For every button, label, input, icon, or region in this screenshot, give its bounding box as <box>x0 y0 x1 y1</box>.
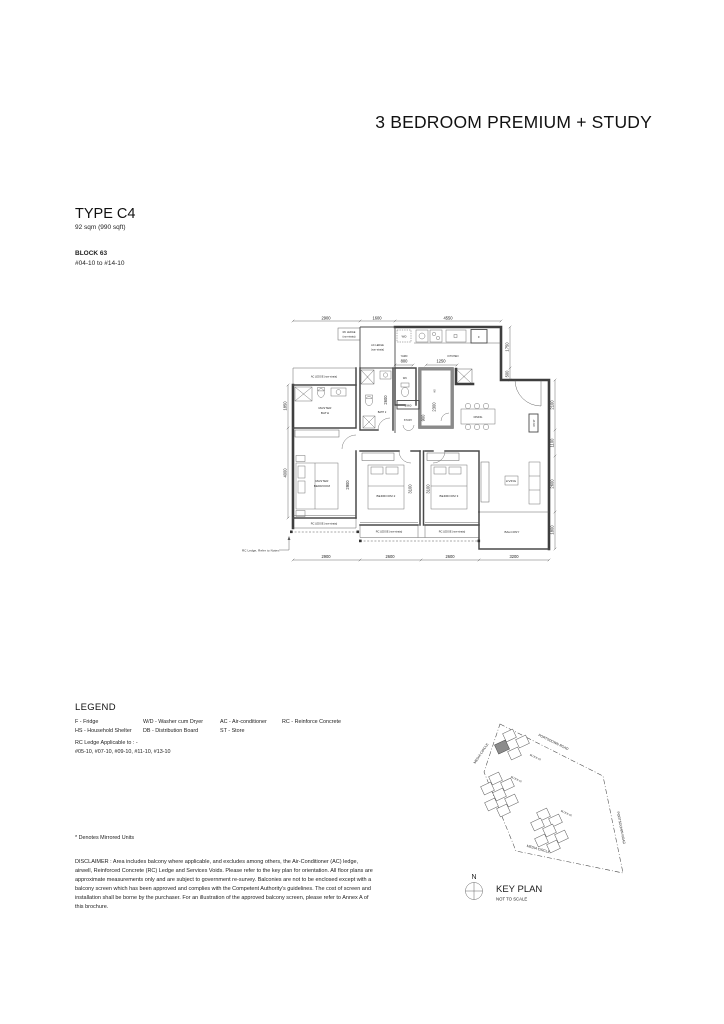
floor-plan: RC LEDGE (non-strata) RC LEDGE (non-stra… <box>240 313 583 571</box>
dim-right-1100: 1100 <box>550 438 555 448</box>
master-bedroom: MASTER BEDROOM 2900 <box>295 430 356 517</box>
master-bath-label2: BATH <box>321 411 329 415</box>
disclaimer-text: DISCLAIMER : Area includes balcony where… <box>75 858 375 911</box>
ac-ledge-strip-label: AC LEDGE (non-strata) <box>311 376 337 379</box>
highlighted-unit <box>494 740 509 754</box>
key-plan: BLOCK 63 BLOCK 61 BLOCK 65 PORTSDOWN ROA… <box>438 698 666 913</box>
walls-interior <box>293 368 549 526</box>
bath2-label: BATH 2 <box>378 411 387 414</box>
keyplan-block-63: BLOCK 63 <box>494 729 541 762</box>
block-info: BLOCK 63 #04-10 to #14-10 <box>75 249 125 269</box>
dim-left-1: 1850 <box>283 401 288 411</box>
bath-2: BATH 2 2600 <box>361 370 391 430</box>
wc-room: WC <box>401 377 409 397</box>
bedroom2-label: BEDROOM 2 <box>377 494 396 498</box>
dim-top-3: 4550 <box>443 315 453 320</box>
bedroom2-dim: 3100 <box>408 484 413 494</box>
rc-ledge-box-label: RC LEDGE <box>343 331 356 334</box>
page-title: 3 BEDROOM PREMIUM + STUDY <box>375 112 652 133</box>
bedroom3-dim: 3100 <box>426 484 431 494</box>
master-bedroom-label2: BEDROOM <box>314 484 331 488</box>
balcony-label: BALCONY <box>504 530 519 534</box>
bedroom3-label: BEDROOM 3 <box>440 494 459 498</box>
rc-ledge-box-label2: (non-strata) <box>343 336 356 339</box>
rc-note: RC Ledge, Refer to Notes. <box>242 536 290 553</box>
hs-label: HS <box>434 389 437 393</box>
keyplan-title: KEY PLAN <box>496 884 542 895</box>
compass: N <box>466 874 483 900</box>
kitchen: W/D F YARD 800 KITCHEN 1250 <box>394 330 501 367</box>
keyplan-scale: NOT TO SCALE <box>496 897 527 902</box>
kitchen-label: KITCHEN <box>448 355 459 358</box>
dim-bottom-1: 2900 <box>321 554 331 559</box>
legend-item: ST - Store <box>220 727 267 736</box>
dim-top-1: 2900 <box>321 315 331 320</box>
ac-ledge-room-label2: (non-strata) <box>371 349 384 352</box>
dining-label: DINING <box>474 416 483 419</box>
dim-bottom-3: 2600 <box>445 554 455 559</box>
kitchen-dim: 1250 <box>436 359 446 364</box>
unit-type-block: TYPE C4 92 sqm (990 sqft) <box>75 206 135 231</box>
master-bath-label: MASTER <box>318 406 332 410</box>
rc-ledge-applicable-line2: #05-10, #07-10, #09-10, #11-10, #13-10 <box>75 748 171 757</box>
db-st-label: DB ST <box>533 419 536 427</box>
bath2-dim: 2600 <box>383 395 388 405</box>
study-label: STUDY <box>404 419 413 422</box>
dim-left-2: 4000 <box>283 468 288 478</box>
rc-note-text: RC Ledge, Refer to Notes. <box>242 549 280 553</box>
living: LIVING BALCONY <box>481 462 540 534</box>
block-65-label: BLOCK 65 <box>560 810 573 818</box>
block-number: BLOCK 63 <box>75 249 125 259</box>
dim-500: 500 <box>505 370 510 378</box>
master-bath: MASTER BATH <box>295 387 346 415</box>
dim-1750: 1750 <box>505 342 510 352</box>
legend-title: LEGEND <box>75 702 405 713</box>
rc-ledge-strip-label: RC LEDGE (non-strata) <box>376 531 403 534</box>
keyplan-block-61: BLOCK 61 <box>481 772 523 817</box>
north-label: N <box>471 874 476 881</box>
dim-bottom-2: 2600 <box>385 554 395 559</box>
rc-ledge-strip-label: RC LEDGE (non-strata) <box>311 522 338 525</box>
yard-dim: 800 <box>401 359 409 364</box>
legend-item: AC - Air-conditioner <box>220 718 267 727</box>
hs-dim: 2300 <box>432 402 437 412</box>
living-label: LIVING <box>506 479 517 483</box>
rc-ledge-strip-label: RC LEDGE (non-strata) <box>439 531 466 534</box>
legend-item: F - Fridge <box>75 718 132 727</box>
entry: DB ST <box>456 369 541 432</box>
unit-range: #04-10 to #14-10 <box>75 259 125 269</box>
mirrored-units-note: * Denotes Mirrored Units <box>75 835 134 841</box>
legend-item: W/D - Washer cum Dryer <box>143 718 203 727</box>
rc-ledge-applicability: RC Ledge Applicable to : - #05-10, #07-1… <box>75 739 171 756</box>
dim-top-2: 1600 <box>372 315 382 320</box>
ac-ledge-room-label: AC LEDGE <box>371 344 384 347</box>
rc-ledges: RC LEDGE (non-strata) RC LEDGE (non-stra… <box>290 518 480 542</box>
master-bedroom-label: MASTER <box>315 479 329 483</box>
block-63-label: BLOCK 63 <box>529 754 542 762</box>
road-portsdown-top: PORTSDOWN ROAD <box>538 733 570 751</box>
dim-right-2100: 2100 <box>550 400 555 410</box>
wc-label: WC <box>403 377 407 380</box>
dining: DINING <box>461 403 495 429</box>
dim-right-2600: 2600 <box>550 479 555 489</box>
legend-item: HS - Household Shelter <box>75 727 132 736</box>
legend-item: DB - Distribution Board <box>143 727 203 736</box>
dim-bottom-4: 3200 <box>509 554 519 559</box>
bedroom-2: BEDROOM 2 3100 <box>362 451 413 509</box>
fridge-label: F <box>478 335 480 339</box>
master-bedroom-dim: 2900 <box>345 480 350 490</box>
study-width-dim: 900 <box>421 414 426 422</box>
dim-right-1800: 1800 <box>550 525 555 535</box>
bedroom-3: BEDROOM 3 3100 <box>426 451 468 509</box>
unit-type: TYPE C4 <box>75 206 135 222</box>
legend-item: RC - Reinforce Concrete <box>282 718 341 727</box>
floorplan-page: 3 BEDROOM PREMIUM + STUDY TYPE C4 92 sqm… <box>0 0 724 1024</box>
road-portsdown-right: PORTSDOWN ROAD <box>616 811 626 845</box>
study-desk-dim: 1960 <box>404 403 411 407</box>
legend: LEGEND F - Fridge HS - Household Shelter… <box>75 702 405 734</box>
unit-area: 92 sqm (990 sqft) <box>75 224 135 231</box>
rc-ledge-applicable-line1: RC Ledge Applicable to : - <box>75 739 171 748</box>
washer-dryer-label: W/D <box>402 336 407 339</box>
household-shelter: HS 2300 <box>432 389 450 421</box>
